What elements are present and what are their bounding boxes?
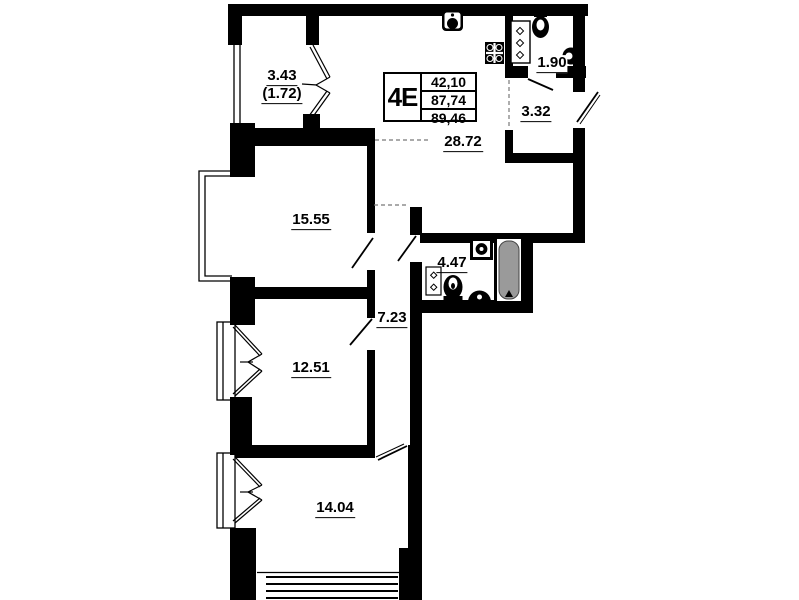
door-bathroom [398,236,416,261]
bathtub-icon [494,236,524,304]
bottom-window-stripes [257,573,408,599]
floor-plan: 3.43 (1.72) 28.72 1.90 3.32 15.55 4.47 7… [0,0,799,600]
label-wc-area: 1.90 [536,55,567,73]
label-room-bottom-area: 14.04 [315,500,355,518]
label-living-kitchen-area: 28.72 [443,134,483,152]
door-wc [528,79,553,90]
unit-area-value-2: 87,74 [422,90,475,108]
washing-machine-icon [468,291,491,303]
stove-icon [485,42,504,64]
unit-info-box: 4E 42,10 87,74 89,46 [383,72,477,122]
wc-cabinet-icon [511,21,530,63]
label-room-middle-area: 12.51 [291,360,331,378]
unit-area-values: 42,10 87,74 89,46 [420,74,475,120]
label-balcony-area-secondary: (1.72) [261,86,302,104]
entry-door [577,92,598,122]
label-room-top-area: 15.55 [291,212,331,230]
label-hall-area: 3.32 [520,104,551,122]
wc-toilet-icon [532,8,549,38]
bath-toilet-icon [444,275,463,303]
unit-area-value-1: 42,10 [422,74,475,90]
unit-type-label: 4E [385,74,420,120]
door-room-top [352,238,373,268]
door-room-middle [350,319,372,345]
label-bathroom-area: 4.47 [436,255,467,273]
label-corridor-area: 7.23 [376,310,407,328]
label-balcony-area: 3.43 [266,68,297,86]
kitchen-sink-icon [442,10,463,31]
unit-area-value-3: 89,46 [422,108,475,126]
bath-sink-icon [470,238,493,260]
door-room-bottom [378,446,407,460]
